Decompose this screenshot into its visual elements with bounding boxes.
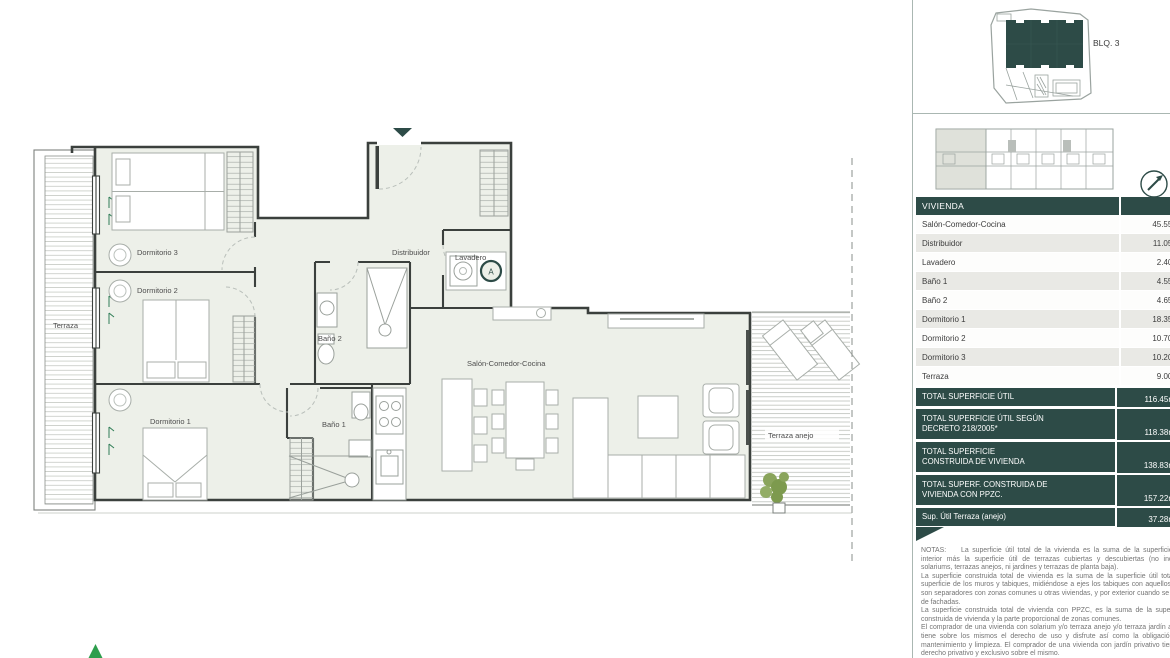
row-label: Terraza [916, 367, 1119, 385]
stair-core-2 [1063, 140, 1071, 152]
floor-plan-sheet: A [0, 0, 1170, 658]
highlighted-unit [936, 129, 986, 189]
label-lavadero: Lavadero [455, 253, 486, 262]
row-value: 2.40m [1121, 253, 1170, 271]
unit-marker-letter: A [488, 268, 494, 277]
row-label: Salón-Comedor-Cocina [916, 215, 1119, 233]
coffee-table [638, 396, 678, 438]
table-row: Distribuidor 11.05m [916, 234, 1170, 253]
row-value: 11.05m [1121, 234, 1170, 252]
row-value: 45.55m [1121, 215, 1170, 233]
surface-table: VIVIENDA Salón-Comedor-Cocina 45.55m Dis… [916, 197, 1170, 541]
compass-icon [1141, 171, 1167, 197]
kitchen-island [442, 379, 487, 471]
table-header-label: VIVIENDA [916, 197, 1119, 215]
stair-core-1 [1008, 140, 1016, 152]
row-label: Dormitorio 2 [916, 329, 1119, 347]
row-label: Baño 1 [916, 272, 1119, 290]
total-value: 37.28m [1117, 508, 1170, 527]
label-bano2: Baño 2 [318, 334, 342, 343]
notes-block: NOTAS:La superficie útil total de la viv… [921, 547, 1170, 658]
row-value: 9.00m [1121, 367, 1170, 385]
total-label: TOTAL SUPERFICIE ÚTIL SEGÚN DECRETO 218/… [916, 409, 1115, 439]
windows-left [93, 176, 100, 473]
row-label: Baño 2 [916, 291, 1119, 309]
row-value: 4.65m [1121, 291, 1170, 309]
table-row: Salón-Comedor-Cocina 45.55m [916, 215, 1170, 234]
table-row: Terraza 9.00m [916, 367, 1170, 386]
total-value: 157.22m [1117, 475, 1170, 506]
notes-heading: NOTAS: [921, 547, 961, 556]
notes-paragraph: La superficie construida total de vivien… [921, 607, 1170, 624]
label-dormitorio2: Dormitorio 2 [137, 286, 178, 295]
site-plan-panel: BLQ. 3 [913, 0, 1170, 114]
total-row: Sup. Útil Terraza (anejo) 37.28m [916, 508, 1170, 527]
table-fold-corner [916, 527, 944, 541]
row-label: Dormitorio 3 [916, 348, 1119, 366]
key-plan-panel [913, 114, 1170, 198]
total-label: TOTAL SUPERFICIE CONSTRUIDA DE VIVIENDA [916, 442, 1115, 472]
total-label: TOTAL SUPERFICIE ÚTIL [916, 388, 1115, 406]
total-row: TOTAL SUPERFICIE ÚTIL 116.45m [916, 388, 1170, 407]
chair-dorm1 [109, 389, 131, 411]
label-distribuidor: Distribuidor [392, 248, 430, 257]
chair-dorm3 [109, 244, 131, 266]
bed-dorm3 [112, 153, 224, 230]
floor-plan-drawing: A [0, 0, 912, 658]
total-label: Sup. Útil Terraza (anejo) [916, 508, 1115, 526]
bed-dorm1 [143, 428, 207, 500]
kitchen [373, 388, 406, 500]
label-bano1: Baño 1 [322, 420, 346, 429]
key-plan-drawing [913, 114, 1170, 198]
block-label: BLQ. 3 [1093, 38, 1120, 48]
row-value: 18.35m [1121, 310, 1170, 328]
chair-dorm2 [109, 280, 131, 302]
table-row: Baño 2 4.65m [916, 291, 1170, 310]
table-row: Dormitorio 3 10.20m [916, 348, 1170, 367]
total-value: 138.83m [1117, 442, 1170, 473]
label-dormitorio1: Dormitorio 1 [150, 417, 191, 426]
total-label: TOTAL SUPERF. CONSTRUIDA DE VIVIENDA CON… [916, 475, 1115, 505]
label-terraza: Terraza [53, 321, 79, 330]
total-row: TOTAL SUPERF. CONSTRUIDA DE VIVIENDA CON… [916, 475, 1170, 506]
info-panel: BLQ. 3 [912, 0, 1170, 658]
total-value: 118.38m [1117, 409, 1170, 440]
bed-dorm2 [143, 300, 209, 382]
notes-paragraph: La superficie construida total de vivien… [921, 573, 1170, 607]
table-row: Dormitorio 1 18.35m [916, 310, 1170, 329]
label-dormitorio3: Dormitorio 3 [137, 248, 178, 257]
table-row: Lavadero 2.40m [916, 253, 1170, 272]
row-value: 10.70m [1121, 329, 1170, 347]
site-plan-drawing: BLQ. 3 [913, 0, 1170, 113]
row-label: Dormitorio 1 [916, 310, 1119, 328]
total-value: 116.45m [1117, 388, 1170, 407]
notes-paragraph: El comprador de una vivienda con solariu… [921, 624, 1170, 658]
label-salon: Salón-Comedor-Cocina [467, 359, 546, 368]
table-header-value [1121, 197, 1170, 215]
label-terraza-anejo: Terraza anejo [768, 431, 813, 440]
table-row: Dormitorio 2 10.70m [916, 329, 1170, 348]
table-header-row: VIVIENDA [916, 197, 1170, 215]
plant [760, 472, 789, 513]
total-row: TOTAL SUPERFICIE CONSTRUIDA DE VIVIENDA … [916, 442, 1170, 473]
tree-icon [88, 644, 103, 658]
total-row: TOTAL SUPERFICIE ÚTIL SEGÚN DECRETO 218/… [916, 409, 1170, 440]
row-label: Lavadero [916, 253, 1119, 271]
row-value: 10.20m [1121, 348, 1170, 366]
entrance-arrow-icon [393, 128, 412, 137]
terraza-balcony [34, 150, 95, 510]
row-label: Distribuidor [916, 234, 1119, 252]
table-row: Baño 1 4.55m [916, 272, 1170, 291]
row-value: 4.55m [1121, 272, 1170, 290]
